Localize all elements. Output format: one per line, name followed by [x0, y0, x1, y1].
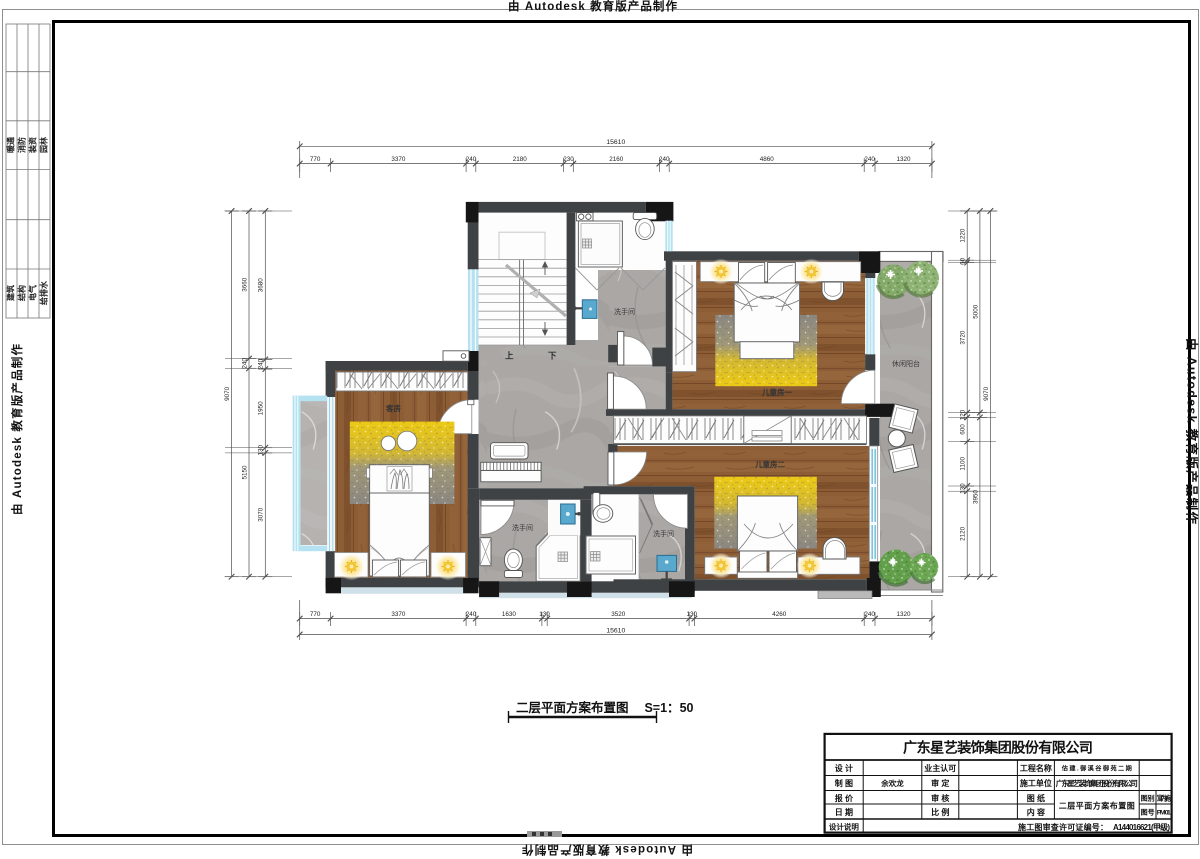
svg-text:休闲阳台: 休闲阳台	[892, 359, 920, 368]
svg-text:60: 60	[960, 257, 967, 265]
svg-text:图 纸: 图 纸	[1027, 793, 1045, 803]
svg-text:240: 240	[258, 358, 265, 369]
svg-text:1630: 1630	[502, 611, 517, 618]
svg-text:上: 上	[505, 351, 514, 361]
svg-text:余欢龙: 余欢龙	[880, 778, 904, 788]
svg-text:A144016621(甲级): A144016621(甲级)	[1113, 822, 1170, 832]
svg-text:240: 240	[241, 358, 248, 369]
svg-text:室内施: 室内施	[1157, 794, 1171, 803]
svg-text:3680: 3680	[258, 278, 265, 293]
svg-text:770: 770	[310, 156, 321, 163]
svg-text:1320: 1320	[896, 611, 911, 618]
svg-text:240: 240	[864, 156, 875, 163]
svg-text:130: 130	[539, 611, 550, 618]
svg-text:设计说明: 设计说明	[829, 822, 859, 832]
svg-text:9070: 9070	[224, 386, 231, 401]
svg-text:设 计: 设 计	[835, 763, 853, 773]
svg-text:洗手间: 洗手间	[653, 529, 674, 538]
svg-text:洗手间: 洗手间	[512, 523, 533, 532]
svg-text:1100: 1100	[960, 457, 967, 471]
svg-text:内 容: 内 容	[1027, 807, 1045, 817]
svg-text:日 期: 日 期	[835, 807, 853, 817]
svg-text:客房: 客房	[385, 403, 401, 413]
svg-text:比 例: 比 例	[931, 807, 949, 817]
svg-text:3520: 3520	[611, 611, 626, 618]
svg-text:审 核: 审 核	[931, 793, 949, 803]
svg-text:5150: 5150	[241, 465, 248, 480]
svg-text:240: 240	[864, 611, 875, 618]
svg-text:工程名称: 工程名称	[1020, 763, 1052, 773]
svg-text:估建.御溪谷御苑二期: 估建.御溪谷御苑二期	[1061, 765, 1132, 773]
svg-text:广东星艺装饰集团股份有限公司: 广东星艺装饰集团股份有限公司	[903, 740, 1093, 757]
svg-text:制 图: 制 图	[835, 778, 853, 788]
svg-text:2180: 2180	[513, 156, 528, 163]
svg-text:3070: 3070	[258, 507, 265, 522]
svg-text:1950: 1950	[258, 401, 265, 416]
svg-text:2120: 2120	[960, 526, 967, 541]
svg-text:120: 120	[960, 409, 967, 420]
svg-text:9070: 9070	[983, 386, 990, 401]
svg-text:240: 240	[466, 156, 477, 163]
svg-text:3370: 3370	[391, 156, 406, 163]
svg-text:3720: 3720	[960, 330, 967, 345]
svg-text:洗手间: 洗手间	[614, 307, 635, 316]
svg-text:3660: 3660	[241, 277, 248, 292]
svg-text:业主认可: 业主认可	[924, 763, 956, 773]
svg-text:二层平面方案布置图: 二层平面方案布置图	[1059, 801, 1135, 811]
svg-text:2160: 2160	[609, 156, 624, 163]
svg-text:1220: 1220	[960, 228, 967, 243]
svg-text:审 定: 审 定	[931, 778, 949, 788]
svg-text:3370: 3370	[391, 611, 406, 618]
svg-text:15610: 15610	[606, 139, 625, 146]
svg-text:240: 240	[659, 156, 670, 163]
svg-text:230: 230	[563, 156, 574, 163]
svg-text:130: 130	[258, 445, 265, 456]
svg-text:3950: 3950	[972, 490, 979, 505]
svg-text:5000: 5000	[972, 304, 979, 319]
svg-text:4860: 4860	[760, 156, 775, 163]
svg-text:240: 240	[466, 611, 477, 618]
svg-text:儿童房二: 儿童房二	[754, 459, 785, 469]
svg-text:PM-01: PM-01	[1157, 810, 1171, 817]
svg-text:130: 130	[960, 483, 967, 494]
svg-text:130: 130	[687, 611, 698, 618]
svg-text:600: 600	[960, 424, 967, 435]
svg-text:报 价: 报 价	[835, 793, 854, 803]
svg-text:15610: 15610	[606, 627, 625, 634]
svg-text:4260: 4260	[772, 611, 787, 618]
svg-text:施工单位: 施工单位	[1020, 778, 1052, 788]
svg-text:图别: 图别	[1141, 794, 1155, 803]
svg-text:儿童房一: 儿童房一	[761, 387, 792, 397]
svg-text:1320: 1320	[896, 156, 911, 163]
svg-text:图号: 图号	[1141, 808, 1155, 817]
svg-text:下: 下	[548, 351, 557, 361]
svg-text:广东星艺装饰集团股份有限公司: 广东星艺装饰集团股份有限公司	[1056, 778, 1138, 788]
svg-text:施工图审查许可证编号：: 施工图审查许可证编号：	[1018, 822, 1108, 832]
svg-text:770: 770	[310, 611, 321, 618]
